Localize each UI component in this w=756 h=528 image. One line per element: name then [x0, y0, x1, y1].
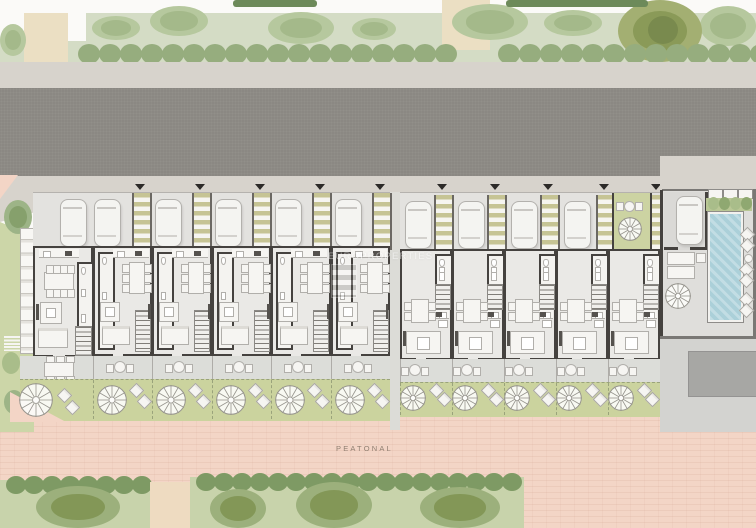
- bush-icon-inner: [710, 13, 746, 39]
- car-icon: [155, 199, 182, 247]
- chair-icon: [144, 264, 152, 273]
- chair-icon: [122, 264, 130, 273]
- bush-icon: [352, 18, 396, 40]
- chair-icon: [322, 274, 330, 283]
- chair-icon: [263, 274, 271, 283]
- coffee-table-icon: [521, 337, 534, 350]
- car-icon: [215, 199, 242, 247]
- chair-icon: [245, 364, 253, 373]
- car-windshield: [63, 207, 82, 209]
- hedge-row-bush-icon: [561, 44, 583, 64]
- hedge-row-bush-icon: [414, 44, 436, 64]
- car-windshield: [278, 207, 297, 209]
- sofa-icon: [161, 326, 189, 345]
- garden-umbrella-icon: [156, 385, 186, 415]
- street-label-peatonal: PEATONAL: [336, 444, 393, 453]
- chair-icon: [577, 367, 585, 376]
- utility-pad: [688, 351, 756, 397]
- chair-icon: [165, 364, 173, 373]
- chair-icon: [508, 302, 516, 311]
- pergola-strip: [252, 193, 272, 250]
- garden-umbrella-icon: [335, 385, 365, 415]
- chair-icon: [612, 302, 620, 311]
- unit-8: [452, 249, 504, 360]
- dining-table: [567, 299, 585, 323]
- car-icon: [94, 199, 121, 247]
- planter-bush-icon: [719, 197, 730, 210]
- tv-icon: [267, 304, 270, 319]
- kitchen-counter: [113, 249, 149, 258]
- bush-icon: [150, 6, 208, 36]
- kitchen-appliance-icon: [542, 320, 552, 328]
- garden-divider: [212, 380, 214, 419]
- hedge-row-bush-icon: [372, 44, 394, 64]
- car-icon: [564, 201, 591, 249]
- toilet-icon: [543, 259, 549, 267]
- shower-icon: [647, 272, 653, 281]
- kitchen-counter: [39, 249, 79, 258]
- sofa-icon: [562, 331, 597, 354]
- courtyard-wall-left: [660, 190, 663, 340]
- chair-icon: [480, 302, 488, 311]
- pergola-strip: [312, 193, 332, 250]
- car-windshield: [408, 209, 427, 211]
- pergola-strip: [540, 195, 560, 252]
- bush-icon-inner: [466, 10, 515, 33]
- hedge-edge-bush-icon: [394, 473, 414, 491]
- chair-icon: [505, 367, 513, 376]
- hedge-row-bush-icon: [351, 44, 373, 64]
- garden-divider: [152, 380, 154, 419]
- kitchen-counter: [351, 249, 387, 258]
- car-windshield: [461, 209, 480, 211]
- garden-umbrella-icon: [452, 385, 478, 411]
- kitchen-counter: [591, 310, 605, 319]
- terrace-divider: [93, 356, 94, 379]
- chair-icon: [508, 312, 516, 321]
- hedge-row-bush-icon: [435, 44, 457, 64]
- sofa-icon: [221, 326, 249, 345]
- sofa-icon: [406, 331, 441, 354]
- tv-icon: [327, 304, 330, 319]
- bathroom-module: [591, 254, 609, 286]
- chair-icon: [635, 202, 643, 211]
- toilet-icon: [439, 259, 445, 267]
- sand-path: [24, 13, 68, 63]
- coffee-table-icon: [573, 337, 586, 350]
- sink-icon: [236, 251, 244, 258]
- chair-icon: [181, 284, 189, 293]
- dining-table: [129, 262, 145, 294]
- sink-icon: [221, 292, 226, 300]
- chair-icon: [382, 284, 390, 293]
- car-rear-window: [338, 235, 357, 237]
- chair-icon: [636, 302, 644, 311]
- hedge-row-bush-icon: [288, 44, 310, 64]
- tree-icon-inner: [220, 496, 256, 521]
- sofa-icon: [510, 331, 545, 354]
- pool-zone-sidewalk: [660, 156, 756, 192]
- hedge-edge-bush-icon: [214, 473, 234, 491]
- hedge-edge-bush-icon: [268, 473, 288, 491]
- hedge-row-bush-icon: [582, 44, 604, 64]
- planter-bush-icon: [730, 197, 741, 210]
- tv-icon: [386, 304, 389, 319]
- hedge-row-bush-icon: [162, 44, 184, 64]
- terrace-divider: [556, 359, 557, 382]
- unit-4: [212, 246, 271, 356]
- kitchen-counter: [232, 249, 268, 258]
- dining-table: [515, 299, 533, 323]
- car-windshield: [218, 207, 237, 209]
- hedge-row-bush-icon: [624, 44, 646, 64]
- sink-icon: [43, 251, 51, 258]
- car-windshield: [97, 207, 116, 209]
- chair-icon: [360, 284, 368, 293]
- car-icon: [405, 201, 432, 249]
- pergola-strip: [487, 195, 507, 252]
- hedge-edge-bush-icon: [502, 473, 522, 491]
- side-table-icon: [696, 253, 706, 263]
- chair-icon: [263, 284, 271, 293]
- bush-icon-inner: [360, 22, 388, 36]
- terrace-divider: [608, 359, 609, 382]
- sofa-icon: [340, 326, 368, 345]
- chair-icon: [284, 364, 292, 373]
- garden-umbrella-icon: [504, 385, 530, 411]
- hedge-row-bush-icon: [141, 44, 163, 64]
- kitchen-counter: [172, 249, 208, 258]
- entrance-arrow-icon: [315, 184, 325, 190]
- chair-icon: [364, 364, 372, 373]
- car-rear-window: [63, 235, 82, 237]
- garden-umbrella-icon: [97, 385, 127, 415]
- terrace-dining-table: [44, 362, 74, 377]
- road: [0, 88, 756, 176]
- entrance-arrow-icon: [135, 184, 145, 190]
- planter-bush-icon: [708, 197, 719, 210]
- coffee-table-icon: [417, 337, 430, 350]
- chair-icon: [241, 264, 249, 273]
- hedge-row-bush-icon: [645, 44, 667, 64]
- hedge-row-bush-icon: [603, 44, 625, 64]
- chair-icon: [480, 312, 488, 321]
- chair-icon: [300, 274, 308, 283]
- bush-icon-inner: [160, 11, 197, 30]
- guest-parking-gate: [678, 247, 690, 250]
- chair-icon: [122, 284, 130, 293]
- bush-icon: [452, 4, 528, 40]
- chair-icon: [67, 289, 75, 298]
- garden-umbrella-icon: [19, 383, 53, 417]
- sink-icon: [340, 292, 345, 300]
- toilet-icon: [102, 257, 107, 265]
- chair-icon: [304, 364, 312, 373]
- garden-umbrella-icon: [275, 385, 305, 415]
- car-rear-window: [461, 237, 480, 239]
- hedge-edge-bush-icon: [484, 473, 504, 491]
- site-plan: EUROPROPERTIES PEATONAL: [0, 0, 756, 528]
- stairs-icon: [487, 284, 503, 310]
- stairs-icon: [539, 284, 555, 310]
- terrace-table-icon: [513, 364, 525, 376]
- car-windshield: [338, 207, 357, 209]
- sink-icon: [117, 251, 125, 258]
- armchair-cushion: [224, 307, 234, 317]
- tv-icon: [208, 304, 211, 319]
- bush-icon: [700, 6, 756, 46]
- chair-icon: [401, 367, 409, 376]
- hedge-row-bush-icon: [225, 44, 247, 64]
- sofa-icon: [102, 326, 130, 345]
- shower-icon: [543, 272, 549, 281]
- hedge-edge-bush-icon: [286, 473, 306, 491]
- chair-icon: [421, 367, 429, 376]
- terrace-divider: [152, 356, 153, 379]
- tree-icon-inner: [434, 494, 485, 520]
- chair-icon: [241, 284, 249, 293]
- chair-icon: [382, 264, 390, 273]
- car-icon: [60, 199, 87, 247]
- sofa-icon: [280, 326, 308, 345]
- hedge-row-bush-icon: [183, 44, 205, 64]
- toilet-icon: [491, 259, 497, 267]
- hedge-edge-bush-icon: [6, 476, 26, 494]
- hedge-row-bush-icon: [267, 44, 289, 64]
- chair-icon: [404, 302, 412, 311]
- unit-7: [400, 249, 452, 360]
- tree-icon: [296, 482, 372, 528]
- chair-icon: [122, 274, 130, 283]
- chair-icon: [56, 356, 65, 363]
- unit-11: [608, 249, 660, 360]
- garden-umbrella-icon: [216, 385, 246, 415]
- toilet-icon: [221, 257, 226, 265]
- large-tree-core: [648, 16, 678, 44]
- chair-icon: [344, 364, 352, 373]
- terrace-divider: [271, 356, 272, 379]
- crosswalk: [4, 336, 20, 351]
- car-windshield: [567, 209, 586, 211]
- bush-icon-inner: [280, 18, 322, 38]
- sink-icon: [295, 251, 303, 258]
- chair-icon: [185, 364, 193, 373]
- dining-table: [44, 272, 74, 290]
- tv-icon: [36, 304, 39, 320]
- dining-table: [619, 299, 637, 323]
- hedge-edge-bush-icon: [114, 476, 134, 494]
- car-rear-window: [567, 237, 586, 239]
- unit-5: [271, 246, 330, 356]
- armchair-cushion: [46, 308, 56, 318]
- sofa-icon: [458, 331, 493, 354]
- terrace-table-icon: [461, 364, 473, 376]
- toilet-icon: [81, 267, 86, 275]
- coffee-table-icon: [625, 337, 638, 350]
- tv-icon: [148, 304, 151, 319]
- chair-icon: [456, 312, 464, 321]
- chair-icon: [46, 356, 55, 363]
- chair-icon: [636, 312, 644, 321]
- stairs-icon: [435, 284, 451, 310]
- hob-icon: [435, 312, 442, 317]
- pergola-strip: [372, 193, 392, 250]
- chair-icon: [360, 264, 368, 273]
- chair-icon: [560, 302, 568, 311]
- chair-icon: [300, 264, 308, 273]
- sofa-icon: [38, 328, 68, 348]
- dining-table: [248, 262, 264, 294]
- hob-icon: [539, 312, 546, 317]
- hedge-row-bush-icon: [204, 44, 226, 64]
- car-windshield: [514, 209, 533, 211]
- bench-icon: [667, 266, 695, 279]
- kitchen-counter: [435, 310, 449, 319]
- terrace-table-icon: [352, 361, 364, 373]
- bush-icon: [268, 12, 334, 44]
- chair-icon: [584, 302, 592, 311]
- chair-icon: [428, 302, 436, 311]
- toilet-icon: [280, 257, 285, 265]
- terrace-table-icon: [617, 364, 629, 376]
- hedge-row-bush-icon: [330, 44, 352, 64]
- pergola-round-icon: [618, 217, 642, 241]
- toilet-icon: [647, 259, 653, 267]
- chair-icon: [67, 265, 75, 274]
- chair-icon: [360, 274, 368, 283]
- tree-icon-inner: [9, 206, 27, 228]
- bush-icon: [2, 352, 20, 374]
- chair-icon: [66, 356, 75, 363]
- hob-icon: [313, 251, 320, 256]
- unit-10: [556, 249, 608, 360]
- pool-umbrella-icon: [665, 283, 691, 309]
- hob-icon: [194, 251, 201, 256]
- terrace-divider: [452, 359, 453, 382]
- sink-icon: [280, 292, 285, 300]
- garden-divider: [331, 380, 333, 419]
- hob-icon: [135, 251, 142, 256]
- dining-table: [411, 299, 429, 323]
- terrace-divider: [212, 356, 213, 379]
- chair-icon: [322, 264, 330, 273]
- shower-icon: [595, 272, 601, 281]
- car-icon: [335, 199, 362, 247]
- dining-table: [188, 262, 204, 294]
- hedge-row-bush-icon: [309, 44, 331, 64]
- chair-icon: [126, 364, 134, 373]
- garden-umbrella-icon: [608, 385, 634, 411]
- chair-icon: [525, 367, 533, 376]
- entrance-arrow-icon: [543, 184, 553, 190]
- sink-icon: [102, 292, 107, 300]
- entrance-arrow-icon: [599, 184, 609, 190]
- hedge-edge-bush-icon: [24, 476, 44, 494]
- armchair-cushion: [343, 307, 353, 317]
- garden-divider: [93, 380, 95, 419]
- tree-icon-inner: [310, 490, 359, 519]
- kitchen-counter: [539, 310, 553, 319]
- sink-icon: [176, 251, 184, 258]
- chair-icon: [584, 312, 592, 321]
- chair-icon: [557, 367, 565, 376]
- kitchen-counter: [643, 310, 657, 319]
- stairs-icon: [75, 326, 92, 356]
- sidewalk-north: [0, 62, 756, 89]
- car-rear-window: [278, 235, 297, 237]
- hedge-bar: [506, 0, 648, 7]
- chair-icon: [263, 264, 271, 273]
- hedge-row-bush-icon: [498, 44, 520, 64]
- terrace-divider: [331, 356, 332, 379]
- sand-gap-south: [150, 482, 190, 528]
- car-icon: [458, 201, 485, 249]
- bathroom-module: [643, 254, 661, 286]
- bush-icon-inner: [101, 20, 132, 35]
- unit-1: [33, 246, 93, 357]
- chair-icon: [532, 312, 540, 321]
- entrance-arrow-icon: [195, 184, 205, 190]
- bush-icon-inner: [5, 30, 22, 50]
- hedge-row-bush-icon: [78, 44, 100, 64]
- hedge-row-bush-icon: [99, 44, 121, 64]
- unit-9: [504, 249, 556, 360]
- bush-icon: [92, 16, 140, 40]
- toilet-icon: [340, 257, 345, 265]
- hob-icon: [373, 251, 380, 256]
- hedge-row-bush-icon: [246, 44, 268, 64]
- armchair-cushion: [283, 307, 293, 317]
- hob-icon: [591, 312, 598, 317]
- sink-icon: [161, 292, 166, 300]
- terrace-table-icon: [624, 201, 635, 212]
- terrace-divider: [400, 359, 401, 382]
- kitchen-counter: [291, 249, 327, 258]
- pergola-strip: [132, 193, 152, 250]
- hob-icon: [643, 312, 650, 317]
- bathroom-module: [435, 254, 453, 286]
- chair-icon: [144, 274, 152, 283]
- kitchen-counter: [487, 310, 501, 319]
- chair-icon: [560, 312, 568, 321]
- bathroom-module: [77, 262, 94, 328]
- armchair-cushion: [164, 307, 174, 317]
- stairs-icon: [591, 284, 607, 310]
- car-rear-window: [408, 237, 427, 239]
- bench-icon: [667, 252, 695, 265]
- garden-umbrella-icon: [400, 385, 426, 411]
- terrace-strip-left: [20, 356, 390, 380]
- chair-icon: [203, 284, 211, 293]
- hedge-edge-bush-icon: [412, 473, 432, 491]
- planter-bush-icon: [741, 197, 752, 210]
- unit-2: [93, 246, 152, 356]
- entrance-arrow-icon: [437, 184, 447, 190]
- car-icon: [676, 196, 703, 245]
- stairs-icon: [643, 284, 659, 310]
- chair-icon: [241, 274, 249, 283]
- chair-icon: [532, 302, 540, 311]
- tree-icon: [36, 486, 120, 528]
- chair-icon: [203, 274, 211, 283]
- terrace-table-icon: [233, 361, 245, 373]
- chair-icon: [144, 284, 152, 293]
- pergola-strip: [192, 193, 212, 250]
- kitchen-appliance-icon: [438, 320, 448, 328]
- hedge-row-bush-icon: [519, 44, 541, 64]
- terrace-divider: [504, 359, 505, 382]
- chair-icon: [181, 274, 189, 283]
